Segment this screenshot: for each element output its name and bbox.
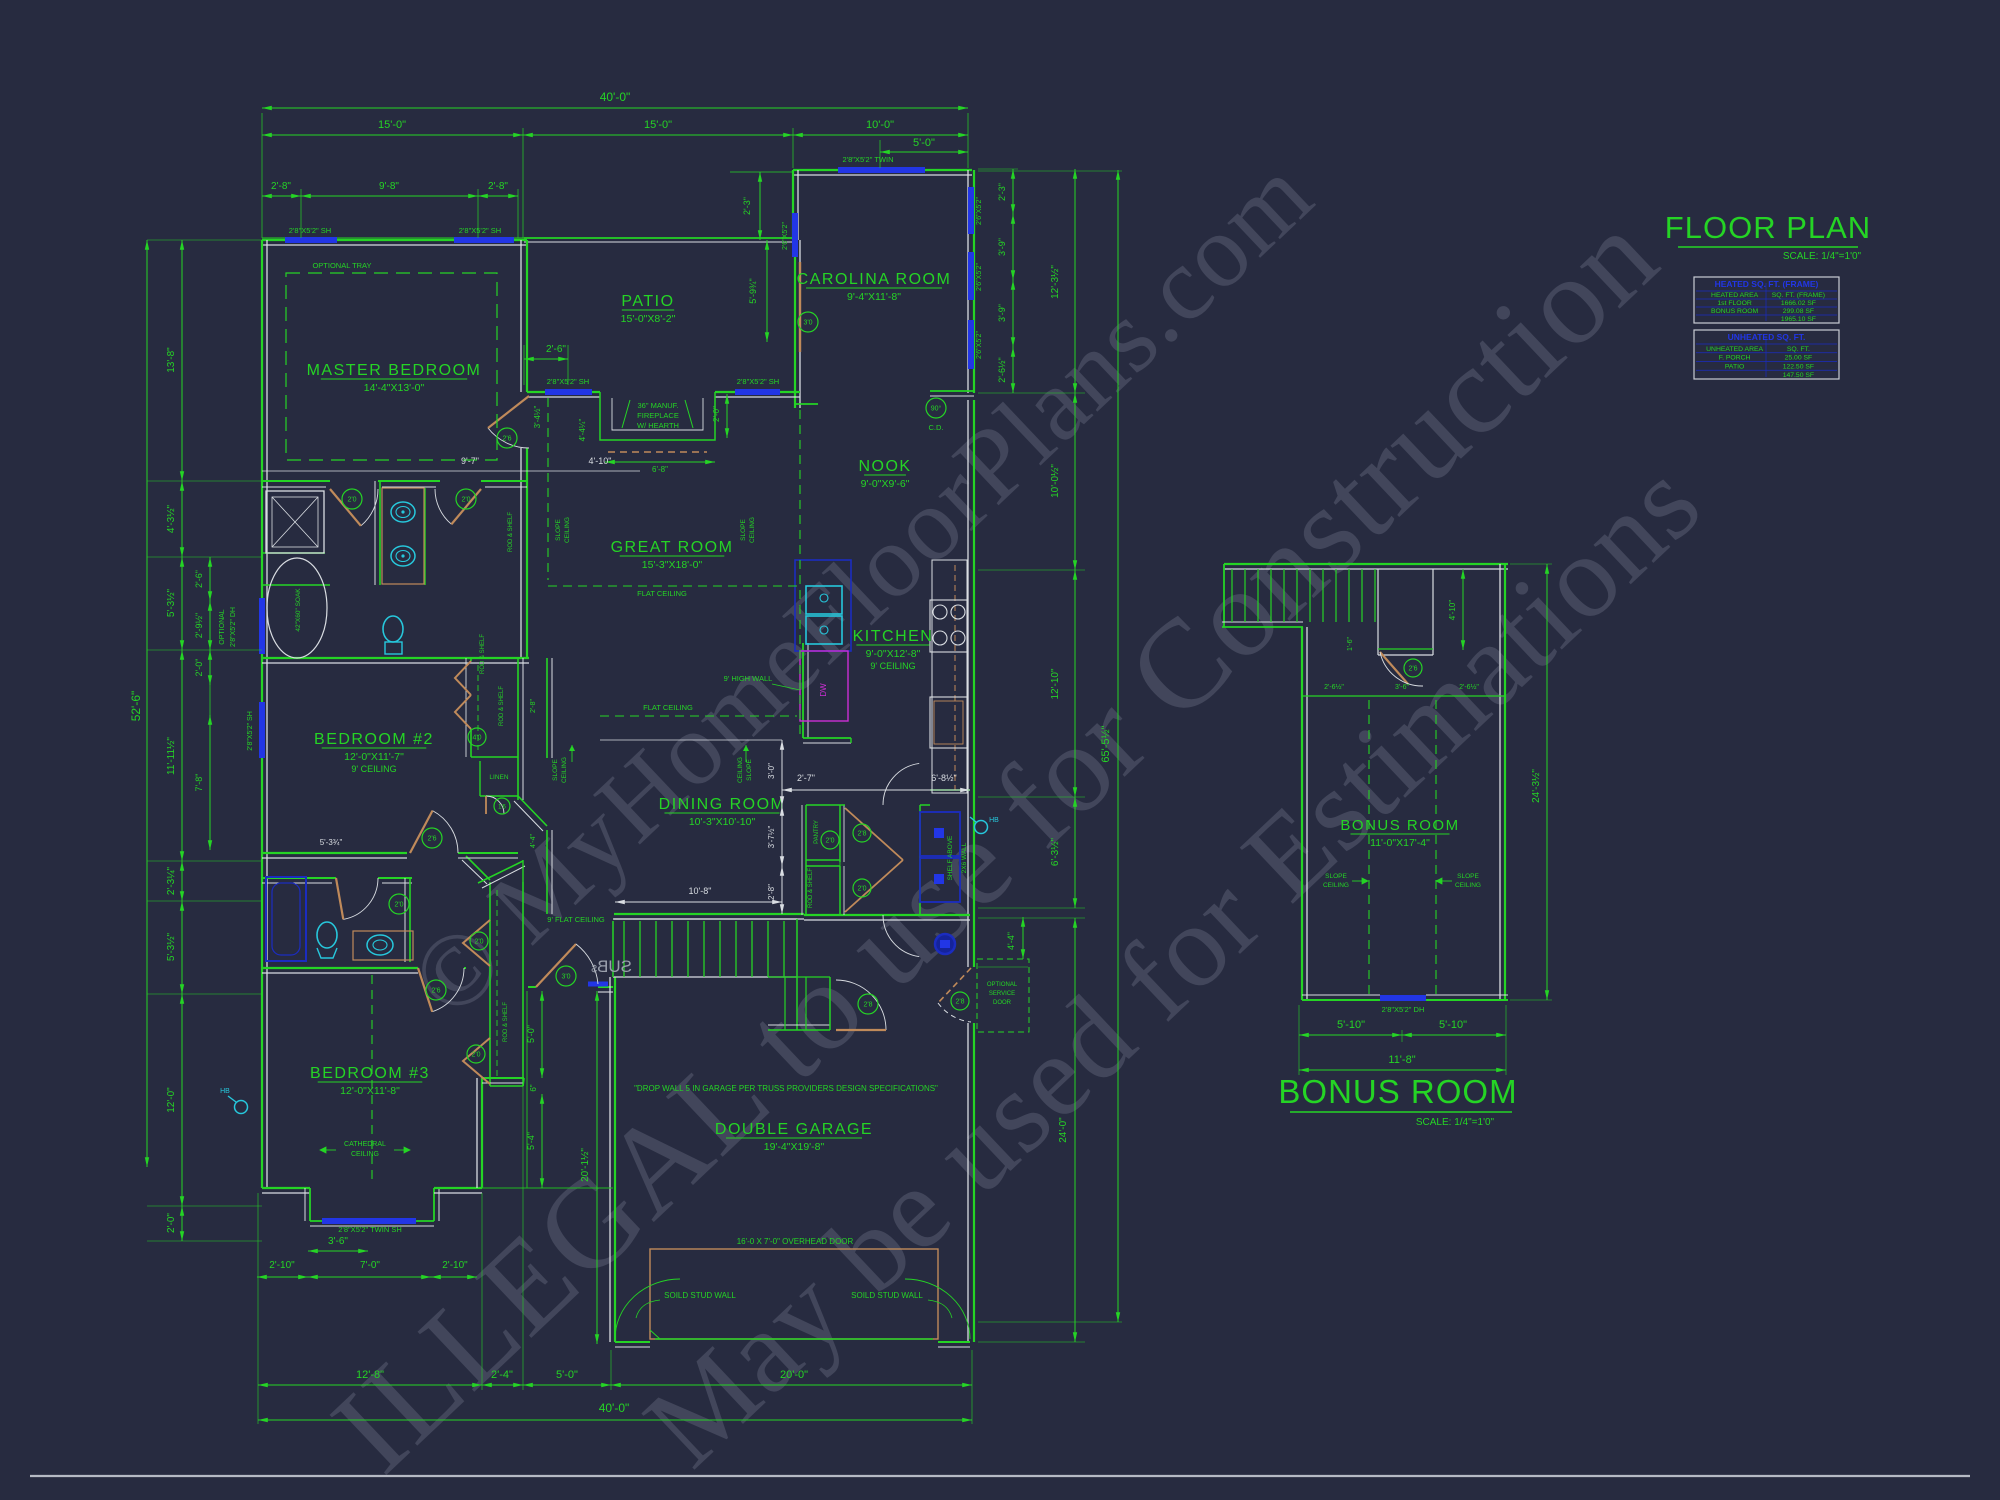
svg-text:2'6"X5'2": 2'6"X5'2" — [976, 197, 983, 225]
svg-text:5'-3½": 5'-3½" — [166, 588, 177, 617]
svg-text:SCALE: 1/4"=1'0": SCALE: 1/4"=1'0" — [1416, 1117, 1495, 1128]
svg-text:11'-0"X17'-4": 11'-0"X17'-4" — [1370, 837, 1430, 849]
svg-text:2'6: 2'6 — [431, 988, 440, 995]
svg-text:OPTIONAL TRAY: OPTIONAL TRAY — [312, 261, 371, 270]
svg-text:20'-0": 20'-0" — [780, 1369, 808, 1381]
svg-text:SOILD STUD WALL: SOILD STUD WALL — [664, 1291, 736, 1300]
svg-text:SLOPE: SLOPE — [552, 759, 559, 781]
svg-text:3'0: 3'0 — [803, 320, 812, 327]
svg-text:15'-3"X18'-0": 15'-3"X18'-0" — [642, 559, 703, 571]
svg-text:10'-3"X10'-10": 10'-3"X10'-10" — [689, 816, 756, 828]
svg-text:5'-4": 5'-4" — [526, 1132, 536, 1150]
svg-text:2'6: 2'6 — [1408, 666, 1417, 673]
svg-text:6'-8": 6'-8" — [652, 465, 668, 474]
svg-text:DW: DW — [819, 683, 828, 697]
svg-text:5'-0": 5'-0" — [556, 1369, 578, 1381]
svg-text:2'8: 2'8 — [863, 1002, 872, 1009]
svg-text:KITCHEN: KITCHEN — [853, 628, 934, 645]
svg-text:PATIO: PATIO — [1725, 363, 1744, 370]
svg-text:3'0: 3'0 — [561, 974, 570, 981]
svg-text:19'-4"X19'-8": 19'-4"X19'-8" — [764, 1141, 825, 1153]
svg-text:11'-8": 11'-8" — [1388, 1054, 1415, 1066]
svg-text:MASTER BEDROOM: MASTER BEDROOM — [307, 362, 482, 379]
svg-text:BONUS ROOM: BONUS ROOM — [1711, 308, 1759, 315]
svg-text:SLOPE: SLOPE — [1325, 873, 1347, 880]
svg-text:SCALE: 1/4"=1'0": SCALE: 1/4"=1'0" — [1783, 251, 1862, 262]
svg-text:HB: HB — [220, 1088, 230, 1095]
svg-text:25.00 SF: 25.00 SF — [1785, 355, 1813, 362]
svg-text:CEILING: CEILING — [737, 757, 744, 783]
svg-text:NOOK: NOOK — [858, 458, 911, 475]
svg-text:2'0: 2'0 — [394, 902, 403, 909]
svg-text:BONUS ROOM: BONUS ROOM — [1340, 817, 1459, 834]
svg-text:9' CEILING: 9' CEILING — [351, 764, 396, 774]
svg-text:SERVICE: SERVICE — [989, 991, 1015, 997]
svg-text:CAROLINA ROOM: CAROLINA ROOM — [797, 271, 952, 288]
svg-text:1st FLOOR: 1st FLOOR — [1717, 300, 1751, 307]
svg-text:3'-6": 3'-6" — [328, 1236, 348, 1247]
svg-text:2'6: 2'6 — [427, 836, 436, 843]
svg-text:12'-3½": 12'-3½" — [1050, 265, 1061, 299]
svg-text:2'-3": 2'-3" — [742, 197, 752, 215]
svg-text:122.50 SF: 122.50 SF — [1783, 363, 1814, 370]
svg-text:CEILING: CEILING — [351, 1151, 379, 1158]
svg-text:11'-11½": 11'-11½" — [166, 737, 177, 775]
svg-text:2'-3¼": 2'-3¼" — [165, 866, 177, 895]
svg-text:HEATED AREA: HEATED AREA — [1711, 292, 1759, 299]
svg-text:HB: HB — [989, 817, 999, 824]
svg-text:40'-0": 40'-0" — [599, 1401, 630, 1415]
svg-text:SLOPE: SLOPE — [740, 519, 747, 541]
svg-text:3'-7½": 3'-7½" — [767, 826, 776, 849]
svg-text:42"X60" SOAK: 42"X60" SOAK — [295, 588, 302, 632]
svg-text:2'8"X5'2" TWIN: 2'8"X5'2" TWIN — [843, 155, 894, 164]
svg-text:12'-0"X11'-8": 12'-0"X11'-8" — [340, 1085, 400, 1097]
svg-text:12'-0"X11'-7": 12'-0"X11'-7" — [344, 751, 404, 763]
svg-text:299.08 SF: 299.08 SF — [1783, 308, 1814, 315]
svg-text:14'-4"X13'-0": 14'-4"X13'-0" — [364, 382, 425, 394]
svg-text:F. PORCH: F. PORCH — [1719, 355, 1751, 362]
svg-text:CEILING: CEILING — [564, 517, 571, 543]
svg-text:52'-6": 52'-6" — [129, 691, 143, 722]
svg-text:1'6: 1'6 — [498, 805, 506, 811]
svg-text:6'-8½": 6'-8½" — [931, 773, 956, 783]
svg-text:4'-4": 4'-4" — [1006, 932, 1016, 950]
svg-text:DOUBLE GARAGE: DOUBLE GARAGE — [715, 1121, 873, 1138]
svg-text:2'6"X5'2": 2'6"X5'2" — [782, 222, 789, 250]
svg-text:4'-10": 4'-10" — [589, 456, 612, 466]
svg-text:2'-6½": 2'-6½" — [1459, 683, 1479, 691]
svg-text:2'-8": 2'-8" — [271, 181, 291, 192]
svg-text:2'-8": 2'-8" — [488, 181, 508, 192]
svg-text:2'0: 2'0 — [461, 497, 470, 504]
svg-text:SLOPE: SLOPE — [746, 759, 753, 781]
svg-text:ROD & SHELF: ROD & SHELF — [499, 686, 505, 726]
svg-text:5'-10": 5'-10" — [1337, 1019, 1365, 1031]
svg-text:12'-0": 12'-0" — [166, 1087, 177, 1113]
svg-text:2'-3": 2'-3" — [997, 183, 1007, 201]
svg-text:CEILING: CEILING — [749, 517, 756, 543]
svg-text:2'6"X5'2": 2'6"X5'2" — [976, 263, 983, 291]
svg-text:2'6: 2'6 — [502, 436, 511, 443]
svg-text:9'-8": 9'-8" — [379, 181, 399, 192]
svg-text:2'8"X5'2" SH: 2'8"X5'2" SH — [247, 711, 254, 751]
svg-text:4'-3½": 4'-3½" — [166, 504, 177, 533]
svg-text:GREAT ROOM: GREAT ROOM — [611, 539, 734, 556]
svg-text:2'8"X5'2" SH: 2'8"X5'2" SH — [289, 226, 331, 235]
svg-text:2'-7": 2'-7" — [797, 773, 815, 783]
svg-text:CEILING: CEILING — [561, 757, 568, 783]
svg-text:2'-10": 2'-10" — [269, 1260, 295, 1271]
svg-text:2'8"X5'2" SH: 2'8"X5'2" SH — [459, 226, 501, 235]
svg-text:3'-9": 3'-9" — [997, 304, 1007, 322]
svg-text:ROD & SHELF: ROD & SHELF — [480, 634, 486, 674]
svg-text:16'-0 X 7'-0" OVERHEAD DOOR: 16'-0 X 7'-0" OVERHEAD DOOR — [737, 1237, 854, 1246]
svg-text:4'-4¼": 4'-4¼" — [578, 419, 587, 442]
svg-text:LINEN: LINEN — [489, 774, 508, 781]
svg-text:2'-4": 2'-4" — [491, 1369, 513, 1381]
svg-text:9'-0"X9'-6": 9'-0"X9'-6" — [861, 478, 910, 490]
svg-text:PANTRY: PANTRY — [814, 820, 820, 844]
svg-text:ROD & SHELF: ROD & SHELF — [808, 868, 814, 908]
svg-text:SHELF ABOVE: SHELF ABOVE — [947, 835, 954, 880]
svg-text:ROD & SHELF: ROD & SHELF — [508, 512, 514, 552]
svg-text:36" MANUF.: 36" MANUF. — [637, 401, 678, 410]
svg-text:2'8: 2'8 — [857, 831, 866, 838]
svg-text:BEDROOM #3: BEDROOM #3 — [310, 1065, 430, 1082]
svg-text:SUB$: SUB$ — [591, 957, 632, 976]
svg-text:2'-9½": 2'-9½" — [194, 613, 204, 638]
svg-text:UNHEATED SQ. FT.: UNHEATED SQ. FT. — [1728, 332, 1806, 342]
svg-text:6'-3½": 6'-3½" — [1050, 837, 1061, 866]
svg-text:7'-0": 7'-0" — [360, 1260, 380, 1271]
svg-text:10'-0": 10'-0" — [866, 119, 894, 131]
svg-text:FLAT CEILING: FLAT CEILING — [637, 589, 687, 598]
svg-text:2'8: 2'8 — [955, 999, 964, 1006]
svg-text:5'-0": 5'-0" — [526, 1025, 536, 1043]
svg-text:65'-5½": 65'-5½" — [1100, 725, 1112, 762]
svg-text:4'0: 4'0 — [472, 735, 481, 742]
svg-text:1666.02 SF: 1666.02 SF — [1781, 300, 1816, 307]
svg-text:CEILING: CEILING — [1455, 882, 1481, 889]
svg-text:SLOPE: SLOPE — [555, 519, 562, 541]
svg-text:3'-0": 3'-0" — [767, 763, 776, 779]
svg-text:BONUS ROOM: BONUS ROOM — [1278, 1073, 1517, 1110]
svg-text:SQ. FT.: SQ. FT. — [1787, 346, 1810, 353]
svg-text:5'-0": 5'-0" — [913, 137, 935, 149]
svg-text:15'-0": 15'-0" — [644, 119, 672, 131]
svg-text:2'0: 2'0 — [857, 886, 866, 893]
svg-text:OPTIONAL: OPTIONAL — [987, 982, 1018, 988]
svg-text:2'-6": 2'-6" — [194, 570, 204, 588]
svg-text:15'-0": 15'-0" — [378, 119, 406, 131]
svg-text:40'-0": 40'-0" — [600, 90, 631, 104]
svg-text:3'-4½": 3'-4½" — [533, 406, 542, 429]
svg-text:4'-4": 4'-4" — [530, 834, 537, 848]
svg-text:24'-0": 24'-0" — [1058, 1117, 1069, 1143]
svg-text:PATIO: PATIO — [621, 293, 674, 310]
svg-text:2'0: 2'0 — [825, 838, 834, 845]
svg-text:2'8"X5'2" DH: 2'8"X5'2" DH — [1382, 1005, 1425, 1014]
svg-text:20'-1½": 20'-1½" — [580, 1148, 591, 1182]
svg-text:15'-0"X8'-2": 15'-0"X8'-2" — [621, 313, 676, 325]
svg-text:5'-3¾": 5'-3¾" — [320, 838, 343, 847]
svg-text:W/ HEARTH: W/ HEARTH — [637, 421, 679, 430]
svg-text:1965.10 SF: 1965.10 SF — [1781, 316, 1816, 323]
svg-text:9'-7": 9'-7" — [461, 456, 479, 466]
svg-text:ROD & SHELF: ROD & SHELF — [503, 1002, 509, 1042]
svg-text:2'8"X5'2" SH: 2'8"X5'2" SH — [737, 377, 779, 386]
svg-text:2'-8": 2'-8" — [530, 699, 537, 713]
svg-text:HEATED SQ. FT. (FRAME): HEATED SQ. FT. (FRAME) — [1715, 279, 1819, 289]
svg-text:DINING ROOM: DINING ROOM — [659, 796, 786, 813]
svg-text:2'-0": 2'-0" — [166, 1213, 177, 1233]
svg-text:2X6 WALL: 2X6 WALL — [961, 842, 968, 873]
svg-text:12'-10": 12'-10" — [1050, 668, 1061, 699]
svg-text:FIREPLACE: FIREPLACE — [637, 411, 679, 420]
svg-text:4'-10": 4'-10" — [1448, 600, 1457, 621]
svg-text:2'-8": 2'-8" — [767, 884, 776, 900]
svg-text:1'-6": 1'-6" — [1347, 637, 1354, 651]
svg-text:"DROP WALL 5 IN GARAGE PER TRU: "DROP WALL 5 IN GARAGE PER TRUSS PROVIDE… — [634, 1084, 938, 1093]
svg-text:OPTIONAL: OPTIONAL — [219, 609, 226, 645]
svg-text:2'-10": 2'-10" — [442, 1260, 468, 1271]
svg-text:2'0: 2'0 — [347, 497, 356, 504]
svg-text:3'-9": 3'-9" — [997, 238, 1007, 256]
svg-text:12'-8": 12'-8" — [356, 1369, 384, 1381]
svg-text:147.50 SF: 147.50 SF — [1783, 372, 1814, 379]
svg-text:9' FLAT CEILING: 9' FLAT CEILING — [547, 915, 605, 924]
svg-text:3'-6": 3'-6" — [1395, 684, 1409, 691]
svg-text:24'-3½": 24'-3½" — [1531, 769, 1542, 803]
svg-text:DOOR: DOOR — [993, 1000, 1012, 1006]
svg-text:5'-3½": 5'-3½" — [166, 932, 177, 961]
svg-text:9' CEILING: 9' CEILING — [870, 661, 915, 671]
svg-text:2'0: 2'0 — [474, 939, 483, 946]
svg-text:SOILD STUD WALL: SOILD STUD WALL — [851, 1291, 923, 1300]
svg-text:7'-8": 7'-8" — [194, 774, 204, 792]
svg-text:FLAT CEILING: FLAT CEILING — [643, 703, 693, 712]
svg-text:5'-9¾": 5'-9¾" — [748, 278, 758, 303]
svg-text:2'8"X5'2" TWIN SH: 2'8"X5'2" TWIN SH — [338, 1225, 402, 1234]
svg-text:2'0: 2'0 — [471, 1052, 480, 1059]
svg-text:SLOPE: SLOPE — [1457, 873, 1479, 880]
svg-text:10'-0½": 10'-0½" — [1050, 464, 1061, 498]
svg-text:C.D.: C.D. — [929, 423, 944, 432]
svg-text:BEDROOM #2: BEDROOM #2 — [314, 731, 434, 748]
svg-text:CATHEDRAL: CATHEDRAL — [344, 1141, 386, 1148]
svg-text:9' HIGH WALL: 9' HIGH WALL — [724, 674, 773, 683]
svg-text:9'-0"X12'-8": 9'-0"X12'-8" — [866, 648, 921, 660]
svg-text:2'-6½": 2'-6½" — [997, 357, 1007, 382]
svg-text:FLOOR PLAN: FLOOR PLAN — [1665, 210, 1871, 245]
svg-text:SQ. FT. (FRAME): SQ. FT. (FRAME) — [1772, 292, 1825, 299]
svg-text:UNHEATED AREA: UNHEATED AREA — [1706, 346, 1763, 353]
svg-text:13'-8": 13'-8" — [166, 347, 177, 373]
svg-text:6": 6" — [529, 1084, 538, 1091]
svg-text:90°: 90° — [931, 405, 942, 413]
svg-text:2'-6½": 2'-6½" — [1324, 683, 1344, 691]
svg-text:CEILING: CEILING — [1323, 882, 1349, 889]
svg-text:2'-0": 2'-0" — [712, 406, 721, 422]
svg-text:5'-10": 5'-10" — [1439, 1019, 1467, 1031]
svg-text:2'-6": 2'-6" — [546, 344, 566, 355]
svg-text:2'6"X5'2": 2'6"X5'2" — [976, 331, 983, 359]
svg-text:2'8"X5'2" DH: 2'8"X5'2" DH — [230, 607, 237, 647]
svg-text:10'-8": 10'-8" — [689, 886, 712, 896]
svg-text:9'-4"X11'-8": 9'-4"X11'-8" — [847, 291, 901, 303]
svg-text:2'-0": 2'-0" — [194, 659, 204, 677]
